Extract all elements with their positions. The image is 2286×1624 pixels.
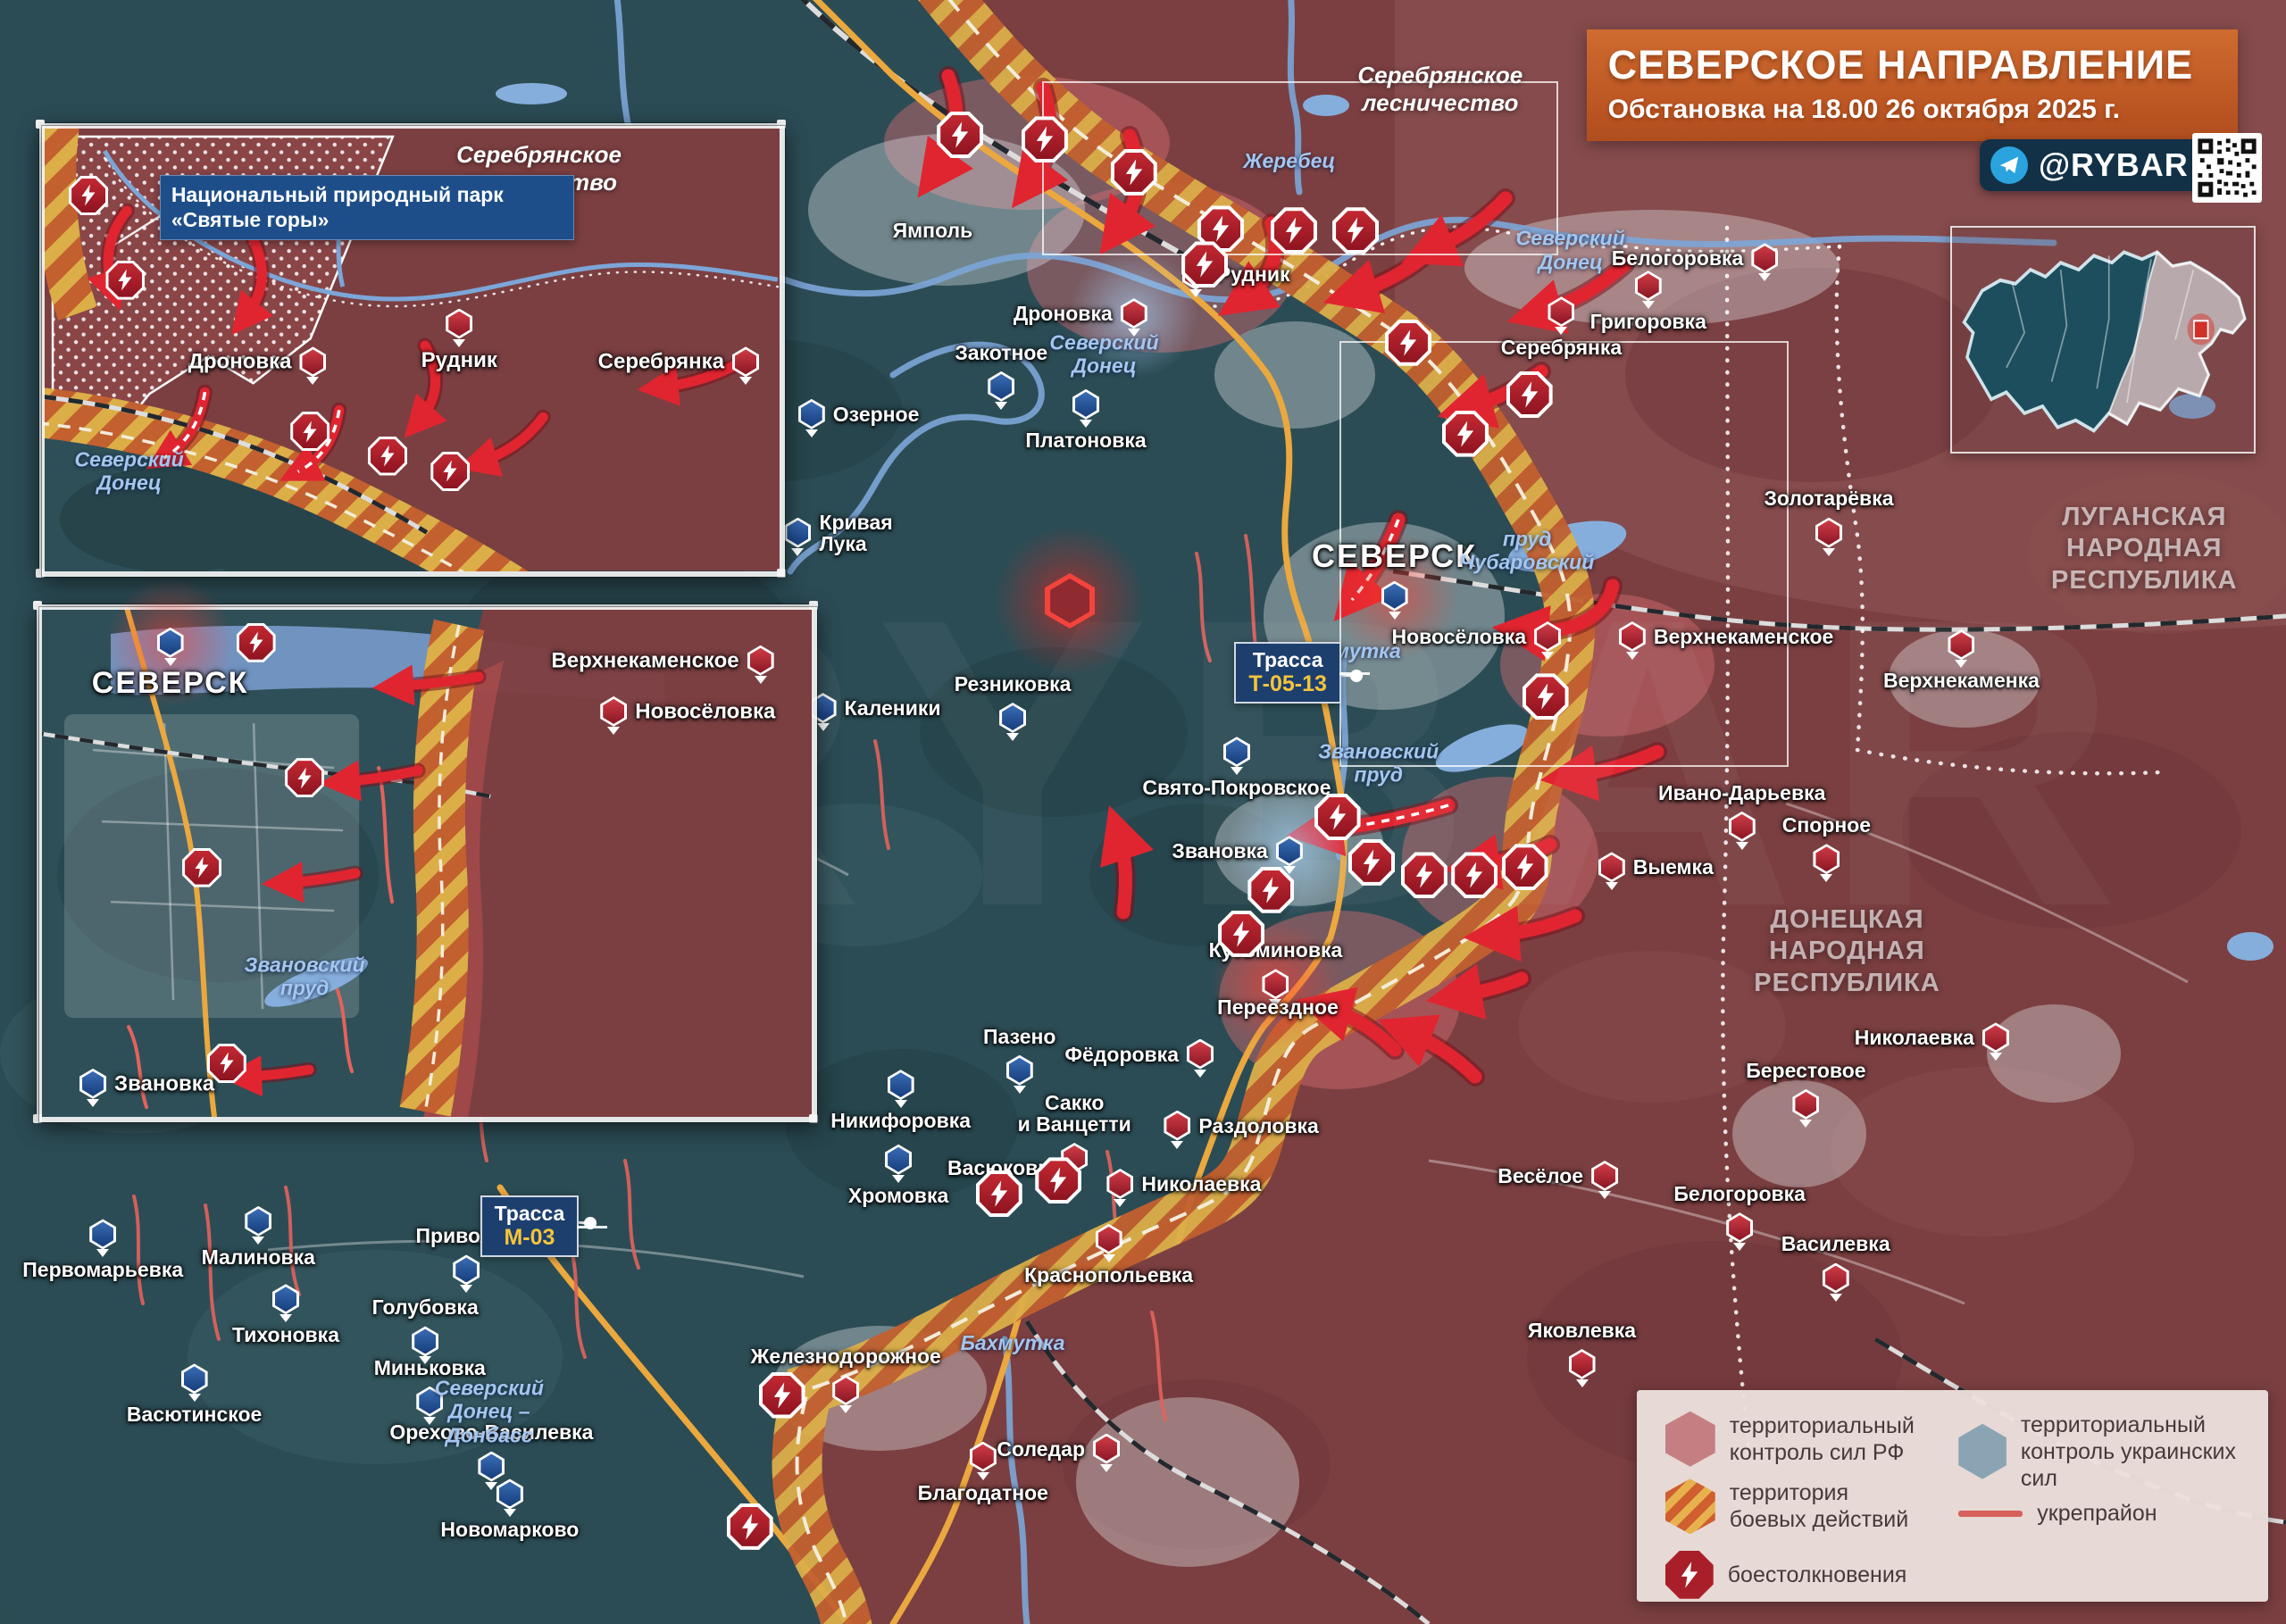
title-banner: СЕВЕРСКОЕ НАПРАВЛЕНИЕ Обстановка на 18.0… <box>1587 29 2238 141</box>
telegram-handle: @RYBAR <box>2039 146 2189 184</box>
fortification-line-icon <box>1958 1511 2023 1517</box>
legend-item-ua: территориальный контроль украинских сил <box>1958 1412 2267 1492</box>
legend-item-clash: боестолкновения <box>1665 1551 1907 1599</box>
ukraine-minimap <box>1950 226 2256 454</box>
legend-label: территория боевых действий <box>1730 1479 1908 1533</box>
ua-control-icon <box>1958 1424 2007 1479</box>
map-title: СЕВЕРСКОЕ НАПРАВЛЕНИЕ <box>1608 44 2216 86</box>
national-park-callout: Национальный природный парк «Святые горы… <box>160 175 574 240</box>
road-label-m03: Трасса М-03 <box>480 1195 580 1257</box>
attack-arrow <box>1118 832 1125 912</box>
clash-icon <box>1665 1551 1714 1599</box>
inset2-terrain <box>39 607 812 1117</box>
qr-code <box>2192 133 2262 203</box>
road-title: Трасса <box>495 1202 565 1225</box>
inset-seversk: СЕВЕРСКВерхнекаменскоеНовосёловкаЗвановк… <box>37 604 814 1120</box>
road-number: М-03 <box>495 1225 565 1251</box>
rf-control-icon <box>1665 1412 1715 1467</box>
battle-zone-icon <box>1665 1478 1715 1534</box>
road-title: Трасса <box>1248 648 1327 671</box>
inset-silver-forest: Национальный природный парк «Святые горы… <box>39 123 783 573</box>
legend-label: боестолкновения <box>1728 1562 1907 1588</box>
telegram-badge: @RYBAR <box>1980 139 2205 191</box>
legend-item-rf: территориальный контроль сил РФ <box>1665 1412 1915 1467</box>
map-canvas: @RYBAR ЯмпольЗакотноеОзерноеКривая ЛукаП… <box>0 0 2286 1624</box>
legend-label: укрепрайон <box>2037 1500 2157 1527</box>
legend-label: территориальный контроль сил РФ <box>1730 1412 1915 1466</box>
road-label-t0513: Трасса Т-05-13 <box>1234 642 1341 704</box>
telegram-icon <box>1990 146 2028 184</box>
legend-label: территориальный контроль украинских сил <box>2021 1412 2268 1492</box>
road-number: Т-05-13 <box>1248 671 1327 697</box>
legend-item-battle: территория боевых действий <box>1665 1478 1908 1534</box>
legend: территориальный контроль сил РФ территор… <box>1637 1390 2268 1601</box>
legend-item-fort: укрепрайон <box>1958 1500 2157 1527</box>
map-subtitle: Обстановка на 18.00 26 октября 2025 г. <box>1608 95 2216 125</box>
